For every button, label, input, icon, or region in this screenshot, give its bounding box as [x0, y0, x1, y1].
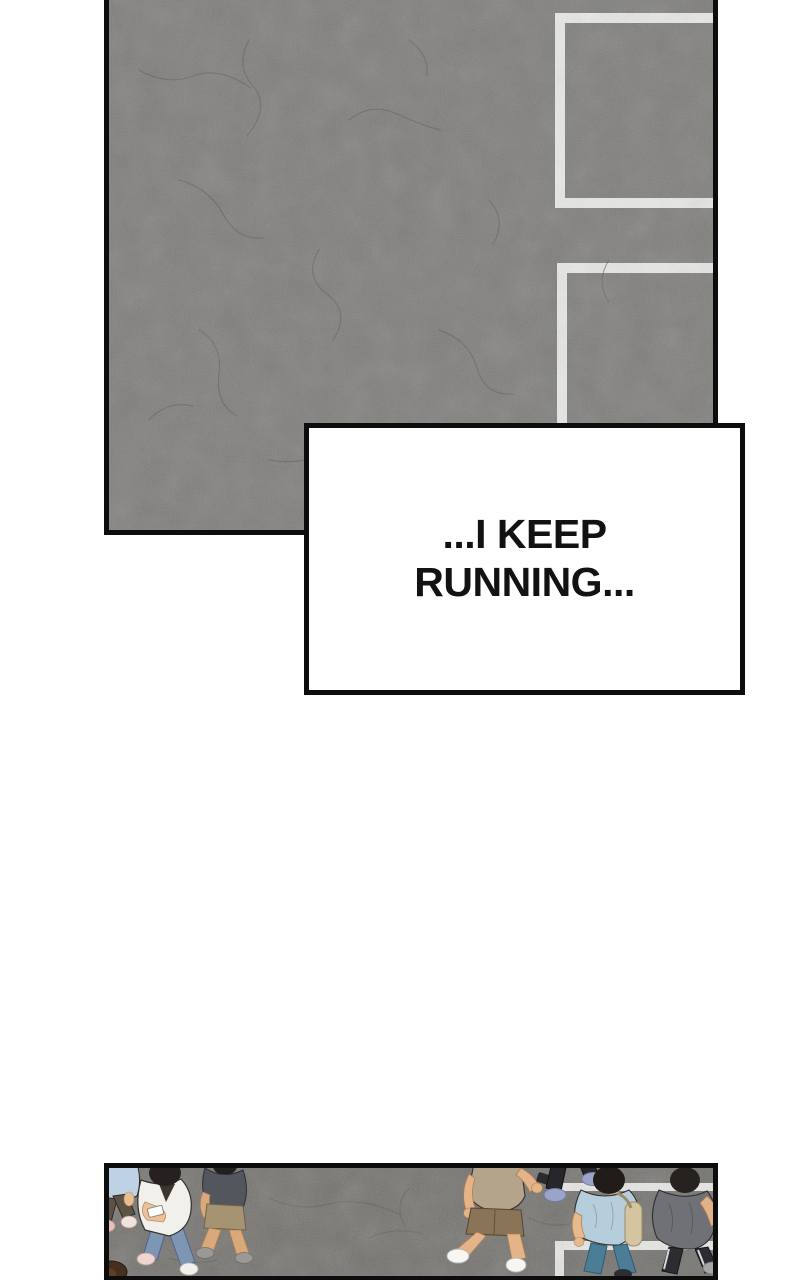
shoulder-bag [625, 1202, 642, 1246]
narration-box: ...I KEEP RUNNING... [304, 423, 745, 695]
narration-line-1: ...I KEEP [442, 511, 606, 559]
narration-line-2: RUNNING... [414, 559, 635, 607]
bottom-crowd-panel [104, 1163, 718, 1280]
crowd-artwork [109, 1168, 713, 1276]
comic-page: ...I KEEP RUNNING... [0, 0, 800, 1280]
